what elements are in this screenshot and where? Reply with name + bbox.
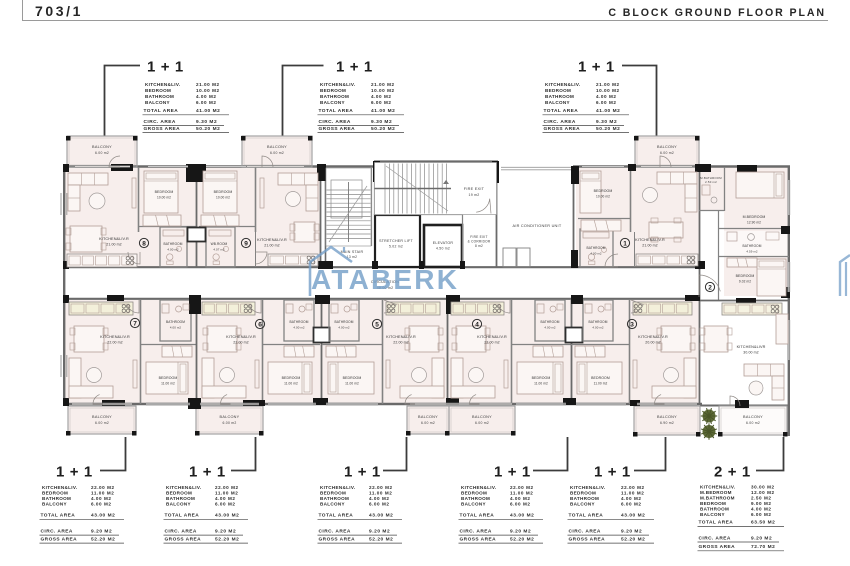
svg-text:21.00 m2: 21.00 m2: [642, 244, 657, 248]
svg-text:21.00 m2: 21.00 m2: [106, 243, 121, 247]
svg-text:CIRC. AREA: CIRC. AREA: [544, 119, 576, 125]
svg-text:4.00 m2: 4.00 m2: [544, 326, 555, 330]
svg-text:BATHROOM: BATHROOM: [589, 320, 608, 324]
svg-text:4.00 M2: 4.00 M2: [596, 94, 616, 99]
svg-text:10.00 m2: 10.00 m2: [596, 195, 610, 199]
svg-text:9.30 M2: 9.30 M2: [371, 119, 392, 125]
svg-text:4.50 m2: 4.50 m2: [436, 247, 450, 251]
svg-text:9.20 M2: 9.20 M2: [369, 529, 390, 535]
svg-text:ATABERK: ATABERK: [311, 264, 459, 295]
svg-text:41.00 M2: 41.00 M2: [196, 108, 220, 114]
svg-text:6.00 M2: 6.00 M2: [751, 512, 771, 517]
svg-text:BEDROOM: BEDROOM: [166, 491, 192, 496]
svg-text:22.00 m2: 22.00 m2: [107, 341, 122, 345]
svg-text:2 + 1: 2 + 1: [714, 464, 751, 481]
svg-text:11.00 M2: 11.00 M2: [621, 491, 644, 496]
svg-text:GROSS AREA: GROSS AREA: [544, 126, 581, 132]
svg-text:2.50 m2: 2.50 m2: [705, 180, 717, 184]
svg-text:1: 1: [623, 240, 627, 247]
svg-text:CIRC. AREA: CIRC. AREA: [699, 535, 731, 541]
svg-text:CIRC. AREA: CIRC. AREA: [460, 529, 492, 535]
svg-text:22.00 M2: 22.00 M2: [621, 485, 645, 490]
svg-text:BALCONY: BALCONY: [92, 145, 112, 149]
svg-text:11.00 m2: 11.00 m2: [284, 382, 298, 386]
svg-text:KITCHEN&LIV.: KITCHEN&LIV.: [166, 485, 201, 490]
svg-text:22.00 M2: 22.00 M2: [215, 485, 239, 490]
svg-text:12.00 M2: 12.00 M2: [751, 490, 775, 495]
svg-text:KITCHEN&LIV.R: KITCHEN&LIV.R: [638, 335, 668, 339]
svg-text:11.00 M2: 11.00 M2: [91, 491, 114, 496]
svg-text:6.00 M2: 6.00 M2: [215, 502, 235, 507]
svg-text:21.00 M2: 21.00 M2: [596, 82, 620, 87]
svg-text:6.00 M2: 6.00 M2: [196, 100, 216, 105]
svg-text:7: 7: [133, 320, 137, 327]
svg-text:52.20 M2: 52.20 M2: [91, 537, 115, 543]
svg-text:43.00 M2: 43.00 M2: [621, 513, 645, 519]
svg-text:20.00 m2: 20.00 m2: [645, 341, 660, 345]
svg-text:2: 2: [708, 284, 712, 291]
svg-text:4.00 m2: 4.00 m2: [170, 326, 181, 330]
svg-text:4.00 M2: 4.00 M2: [215, 496, 235, 501]
svg-text:BALCONY: BALCONY: [145, 100, 170, 105]
svg-text:41.00 M2: 41.00 M2: [596, 108, 620, 114]
svg-text:6.00 m2: 6.00 m2: [746, 421, 760, 425]
svg-text:KITCHEN&LIV.: KITCHEN&LIV.: [320, 82, 355, 87]
svg-text:GROSS AREA: GROSS AREA: [144, 126, 181, 132]
svg-text:KITCHEN&LIV.R: KITCHEN&LIV.R: [477, 335, 507, 339]
svg-text:KITCHEN&LIV.R: KITCHEN&LIV.R: [100, 335, 130, 339]
svg-text:4.00 M2: 4.00 M2: [371, 94, 391, 99]
svg-text:1 + 1: 1 + 1: [336, 59, 373, 76]
svg-text:6.00 m2: 6.00 m2: [660, 151, 674, 155]
svg-text:4.00 m2: 4.00 m2: [592, 326, 603, 330]
svg-text:1 + 1: 1 + 1: [147, 59, 184, 76]
svg-text:BEDROOM: BEDROOM: [570, 491, 596, 496]
svg-text:21.00 M2: 21.00 M2: [196, 82, 220, 87]
svg-text:1 + 1: 1 + 1: [578, 59, 615, 76]
svg-text:KITCHEN&LIV.: KITCHEN&LIV.: [700, 485, 735, 490]
svg-text:BALCONY: BALCONY: [92, 415, 112, 419]
svg-text:22.00 m2: 22.00 m2: [233, 341, 248, 345]
svg-text:BATHROOM: BATHROOM: [700, 507, 729, 512]
svg-text:BALCONY: BALCONY: [418, 415, 438, 419]
svg-text:19 m2: 19 m2: [469, 193, 480, 197]
svg-text:BALCONY: BALCONY: [743, 415, 763, 419]
svg-text:BALCONY: BALCONY: [700, 512, 725, 517]
svg-text:KITCHEN&LIV.R: KITCHEN&LIV.R: [635, 238, 665, 242]
svg-text:BALCONY: BALCONY: [320, 100, 345, 105]
svg-text:BEDROOM: BEDROOM: [145, 88, 171, 93]
svg-text:BATHROOM: BATHROOM: [545, 94, 574, 99]
svg-text:M.BATHROOM: M.BATHROOM: [700, 496, 735, 501]
svg-text:11.00 m2: 11.00 m2: [594, 382, 608, 386]
svg-text:KITCHEN&LIV.: KITCHEN&LIV.: [461, 485, 496, 490]
svg-text:BEDROOM: BEDROOM: [700, 501, 726, 506]
svg-text:9.20 M2: 9.20 M2: [621, 529, 642, 535]
svg-text:6: 6: [258, 321, 262, 328]
svg-text:9.02 m2: 9.02 m2: [739, 280, 751, 284]
svg-text:FIRE EXIT: FIRE EXIT: [470, 235, 487, 239]
svg-text:22.00 m2: 22.00 m2: [484, 341, 499, 345]
svg-text:6.00 M2: 6.00 M2: [621, 502, 641, 507]
svg-text:FIRE EXIT: FIRE EXIT: [464, 187, 485, 191]
svg-text:BALCONY: BALCONY: [320, 502, 345, 507]
svg-text:12.90 m2: 12.90 m2: [747, 221, 761, 225]
svg-text:4: 4: [475, 321, 479, 328]
svg-text:11.00 m2: 11.00 m2: [534, 382, 548, 386]
svg-text:21.00 M2: 21.00 M2: [371, 82, 395, 87]
svg-text:10.00 M2: 10.00 M2: [596, 88, 620, 93]
svg-text:8: 8: [142, 240, 146, 247]
svg-text:TOTAL AREA: TOTAL AREA: [699, 520, 734, 526]
svg-text:6.00 m2: 6.00 m2: [421, 421, 435, 425]
svg-text:4.00 M2: 4.00 M2: [510, 496, 530, 501]
svg-text:BALCONY: BALCONY: [657, 145, 677, 149]
svg-text:BEDROOM: BEDROOM: [545, 88, 571, 93]
svg-text:BATHROOM: BATHROOM: [320, 496, 349, 501]
svg-text:KITCHEN&LIV.R: KITCHEN&LIV.R: [226, 335, 256, 339]
svg-text:CIRC. AREA: CIRC. AREA: [165, 529, 197, 535]
svg-text:52.20 M2: 52.20 M2: [621, 537, 645, 543]
svg-text:BATHROOM: BATHROOM: [320, 94, 349, 99]
svg-text:ELEVATOR: ELEVATOR: [433, 241, 454, 245]
svg-text:703/1: 703/1: [35, 3, 83, 19]
svg-text:TOTAL AREA: TOTAL AREA: [165, 513, 200, 519]
svg-text:6.00 M2: 6.00 M2: [596, 100, 616, 105]
svg-text:10.00 m2: 10.00 m2: [157, 196, 171, 200]
svg-text:22.00 M2: 22.00 M2: [369, 485, 393, 490]
svg-text:AIR CONDITIONER UNIT: AIR CONDITIONER UNIT: [513, 224, 562, 228]
svg-text:BALCONY: BALCONY: [166, 502, 191, 507]
svg-text:GROSS AREA: GROSS AREA: [41, 537, 78, 543]
svg-text:9.20 M2: 9.20 M2: [91, 529, 112, 535]
svg-text:BALCONY: BALCONY: [657, 415, 677, 419]
svg-text:50.20 M2: 50.20 M2: [596, 126, 620, 132]
svg-text:41.00 M2: 41.00 M2: [371, 108, 395, 114]
svg-text:6.00 m2: 6.00 m2: [95, 151, 109, 155]
svg-text:CIRC. AREA: CIRC. AREA: [569, 529, 601, 535]
svg-text:8 m2: 8 m2: [475, 244, 483, 248]
svg-text:43.00 M2: 43.00 M2: [215, 513, 239, 519]
svg-text:9.20 M2: 9.20 M2: [510, 529, 531, 535]
svg-text:BEDROOM: BEDROOM: [214, 190, 233, 194]
svg-text:GROSS AREA: GROSS AREA: [165, 537, 202, 543]
svg-text:52.20 M2: 52.20 M2: [215, 537, 239, 543]
svg-text:BATHROOM: BATHROOM: [166, 320, 185, 324]
svg-text:GROSS AREA: GROSS AREA: [699, 544, 736, 550]
svg-text:TOTAL AREA: TOTAL AREA: [319, 513, 354, 519]
svg-text:BEDROOM: BEDROOM: [155, 190, 174, 194]
svg-text:TOTAL AREA: TOTAL AREA: [144, 108, 179, 114]
svg-text:43.00 M2: 43.00 M2: [91, 513, 115, 519]
svg-text:63.50 M2: 63.50 M2: [751, 520, 775, 526]
svg-text:CIRC. AREA: CIRC. AREA: [319, 529, 351, 535]
svg-text:9.30 M2: 9.30 M2: [596, 119, 617, 125]
svg-text:BALCONY: BALCONY: [220, 415, 240, 419]
svg-text:22.00 M2: 22.00 M2: [510, 485, 534, 490]
svg-text:BATHROOM: BATHROOM: [743, 244, 762, 248]
svg-text:BEDROOM: BEDROOM: [461, 491, 487, 496]
svg-text:GROSS AREA: GROSS AREA: [569, 537, 606, 543]
svg-text:1 + 1: 1 + 1: [56, 464, 93, 481]
svg-text:TOTAL AREA: TOTAL AREA: [319, 108, 354, 114]
svg-text:11.00 m2: 11.00 m2: [345, 382, 359, 386]
svg-text:BATHROOM: BATHROOM: [461, 496, 490, 501]
svg-text:30.00 m2: 30.00 m2: [743, 351, 758, 355]
svg-text:1 + 1: 1 + 1: [344, 464, 381, 481]
svg-text:4.00 M2: 4.00 M2: [91, 496, 111, 501]
svg-text:10.00 M2: 10.00 M2: [371, 88, 395, 93]
svg-text:52.20 M2: 52.20 M2: [369, 537, 393, 543]
svg-text:M.BEDROOM: M.BEDROOM: [700, 490, 732, 495]
svg-text:11.00 M2: 11.00 M2: [369, 491, 392, 496]
svg-text:50.20 M2: 50.20 M2: [196, 126, 220, 132]
svg-text:11.00 M2: 11.00 M2: [510, 491, 533, 496]
svg-text:TOTAL AREA: TOTAL AREA: [569, 513, 604, 519]
svg-text:BEDROOM: BEDROOM: [591, 376, 610, 380]
svg-text:BALCONY: BALCONY: [267, 145, 287, 149]
svg-text:KITCHEN&LIV.: KITCHEN&LIV.: [545, 82, 580, 87]
svg-text:6.00 M2: 6.00 M2: [369, 502, 389, 507]
svg-text:6.00 M2: 6.00 M2: [510, 502, 530, 507]
svg-text:6.00 m2: 6.00 m2: [95, 421, 109, 425]
svg-text:BATHROOM: BATHROOM: [145, 94, 174, 99]
svg-text:BATHROOM: BATHROOM: [335, 320, 354, 324]
svg-text:1 + 1: 1 + 1: [189, 464, 226, 481]
svg-text:21.00 m2: 21.00 m2: [264, 244, 279, 248]
svg-text:4.59 m2: 4.59 m2: [746, 250, 757, 254]
svg-text:TOTAL AREA: TOTAL AREA: [544, 108, 579, 114]
svg-text:GROSS AREA: GROSS AREA: [319, 537, 356, 543]
svg-text:CIRC. AREA: CIRC. AREA: [319, 119, 351, 125]
svg-text:30.00 M2: 30.00 M2: [751, 485, 775, 490]
svg-text:9.00 M2: 9.00 M2: [751, 501, 771, 506]
svg-text:BALCONY: BALCONY: [472, 415, 492, 419]
svg-text:4.00 M2: 4.00 M2: [369, 496, 389, 501]
svg-text:BEDROOM: BEDROOM: [159, 376, 178, 380]
svg-text:BALCONY: BALCONY: [570, 502, 595, 507]
svg-text:KITCHEN&LIVR: KITCHEN&LIVR: [737, 345, 766, 349]
svg-text:4.00 M2: 4.00 M2: [621, 496, 641, 501]
svg-text:BATHROOM: BATHROOM: [570, 496, 599, 501]
svg-text:BEDROOM: BEDROOM: [320, 491, 346, 496]
svg-text:BEDROOM: BEDROOM: [532, 376, 551, 380]
svg-text:TOTAL AREA: TOTAL AREA: [41, 513, 76, 519]
svg-text:BATHROOM: BATHROOM: [587, 246, 606, 250]
svg-text:BEDROOM: BEDROOM: [594, 189, 613, 193]
svg-text:43.00 M2: 43.00 M2: [369, 513, 393, 519]
svg-text:11.00 m2: 11.00 m2: [161, 382, 175, 386]
svg-text:9.20 M2: 9.20 M2: [215, 529, 236, 535]
svg-text:KITCHEN&LIV.: KITCHEN&LIV.: [42, 485, 77, 490]
svg-text:KITCHEN&LIV.: KITCHEN&LIV.: [145, 82, 180, 87]
svg-text:C BLOCK GROUND FLOOR PLAN: C BLOCK GROUND FLOOR PLAN: [608, 7, 826, 19]
svg-text:BALCONY: BALCONY: [42, 502, 67, 507]
svg-text:4.00 m2: 4.00 m2: [167, 248, 178, 252]
svg-text:2.50 M2: 2.50 M2: [751, 496, 771, 501]
svg-text:4.00 M2: 4.00 M2: [751, 507, 771, 512]
svg-text:CIRC. AREA: CIRC. AREA: [144, 119, 176, 125]
svg-text:6.00 m2: 6.00 m2: [222, 421, 236, 425]
svg-text:10.00 m2: 10.00 m2: [216, 196, 230, 200]
svg-text:9: 9: [244, 240, 248, 247]
svg-text:KITCHEN&LIV.: KITCHEN&LIV.: [320, 485, 355, 490]
svg-text:CIRC. AREA: CIRC. AREA: [41, 529, 73, 535]
svg-text:BEDROOM: BEDROOM: [736, 274, 755, 278]
svg-text:BATHROOM: BATHROOM: [541, 320, 560, 324]
svg-text:22.00 m2: 22.00 m2: [393, 341, 408, 345]
svg-text:22.00 M2: 22.00 M2: [91, 485, 115, 490]
svg-text:6.00 M2: 6.00 M2: [91, 502, 111, 507]
svg-text:BEDROOM: BEDROOM: [320, 88, 346, 93]
svg-text:4.00 m2: 4.00 m2: [590, 252, 601, 256]
svg-text:KITCHEN&LIV.R: KITCHEN&LIV.R: [386, 335, 416, 339]
svg-text:TOTAL AREA: TOTAL AREA: [460, 513, 495, 519]
svg-text:& CORRIDOR: & CORRIDOR: [468, 240, 491, 244]
svg-text:M.BEDROOM: M.BEDROOM: [743, 215, 766, 219]
svg-text:4.00 m2: 4.00 m2: [338, 326, 349, 330]
svg-text:STRETCHER LIFT: STRETCHER LIFT: [379, 239, 413, 243]
svg-text:50.20 M2: 50.20 M2: [371, 126, 395, 132]
svg-text:BATHROOM: BATHROOM: [166, 496, 195, 501]
svg-text:WB.ROOM: WB.ROOM: [211, 242, 228, 246]
svg-text:5.02 m2: 5.02 m2: [389, 245, 403, 249]
svg-text:1 + 1: 1 + 1: [494, 464, 531, 481]
svg-text:4.07 m2: 4.07 m2: [213, 248, 224, 252]
svg-text:4.00 M2: 4.00 M2: [196, 94, 216, 99]
svg-text:5: 5: [375, 321, 379, 328]
svg-text:6.90 m2: 6.90 m2: [660, 421, 674, 425]
svg-text:KITCHEN&LIV.R: KITCHEN&LIV.R: [99, 237, 129, 241]
svg-text:10.00 M2: 10.00 M2: [196, 88, 220, 93]
svg-text:9.20 M2: 9.20 M2: [751, 535, 772, 541]
svg-text:3: 3: [630, 321, 634, 328]
svg-text:52.20 M2: 52.20 M2: [510, 537, 534, 543]
svg-text:BALCONY: BALCONY: [461, 502, 486, 507]
svg-text:BEDROOM: BEDROOM: [282, 376, 301, 380]
svg-text:GROSS AREA: GROSS AREA: [460, 537, 497, 543]
svg-text:BATHROOM: BATHROOM: [42, 496, 71, 501]
svg-text:GROSS AREA: GROSS AREA: [319, 126, 356, 132]
svg-text:11.00 M2: 11.00 M2: [215, 491, 238, 496]
svg-text:BATHROOM: BATHROOM: [164, 242, 183, 246]
svg-text:KITCHEN&LIV.R: KITCHEN&LIV.R: [257, 238, 287, 242]
svg-text:6.00 m2: 6.00 m2: [475, 421, 489, 425]
svg-text:KITCHEN&LIV.: KITCHEN&LIV.: [570, 485, 605, 490]
svg-text:BEDROOM: BEDROOM: [343, 376, 362, 380]
svg-text:6.00 M2: 6.00 M2: [371, 100, 391, 105]
svg-text:6.00 m2: 6.00 m2: [270, 151, 284, 155]
svg-text:BALCONY: BALCONY: [545, 100, 570, 105]
svg-text:4.00 m2: 4.00 m2: [293, 326, 304, 330]
svg-text:BATHROOM: BATHROOM: [290, 320, 309, 324]
svg-text:9.30 M2: 9.30 M2: [196, 119, 217, 125]
svg-text:1 + 1: 1 + 1: [594, 464, 631, 481]
svg-text:43.00 M2: 43.00 M2: [510, 513, 534, 519]
svg-text:72.70 M2: 72.70 M2: [751, 544, 775, 550]
svg-text:BEDROOM: BEDROOM: [42, 491, 68, 496]
